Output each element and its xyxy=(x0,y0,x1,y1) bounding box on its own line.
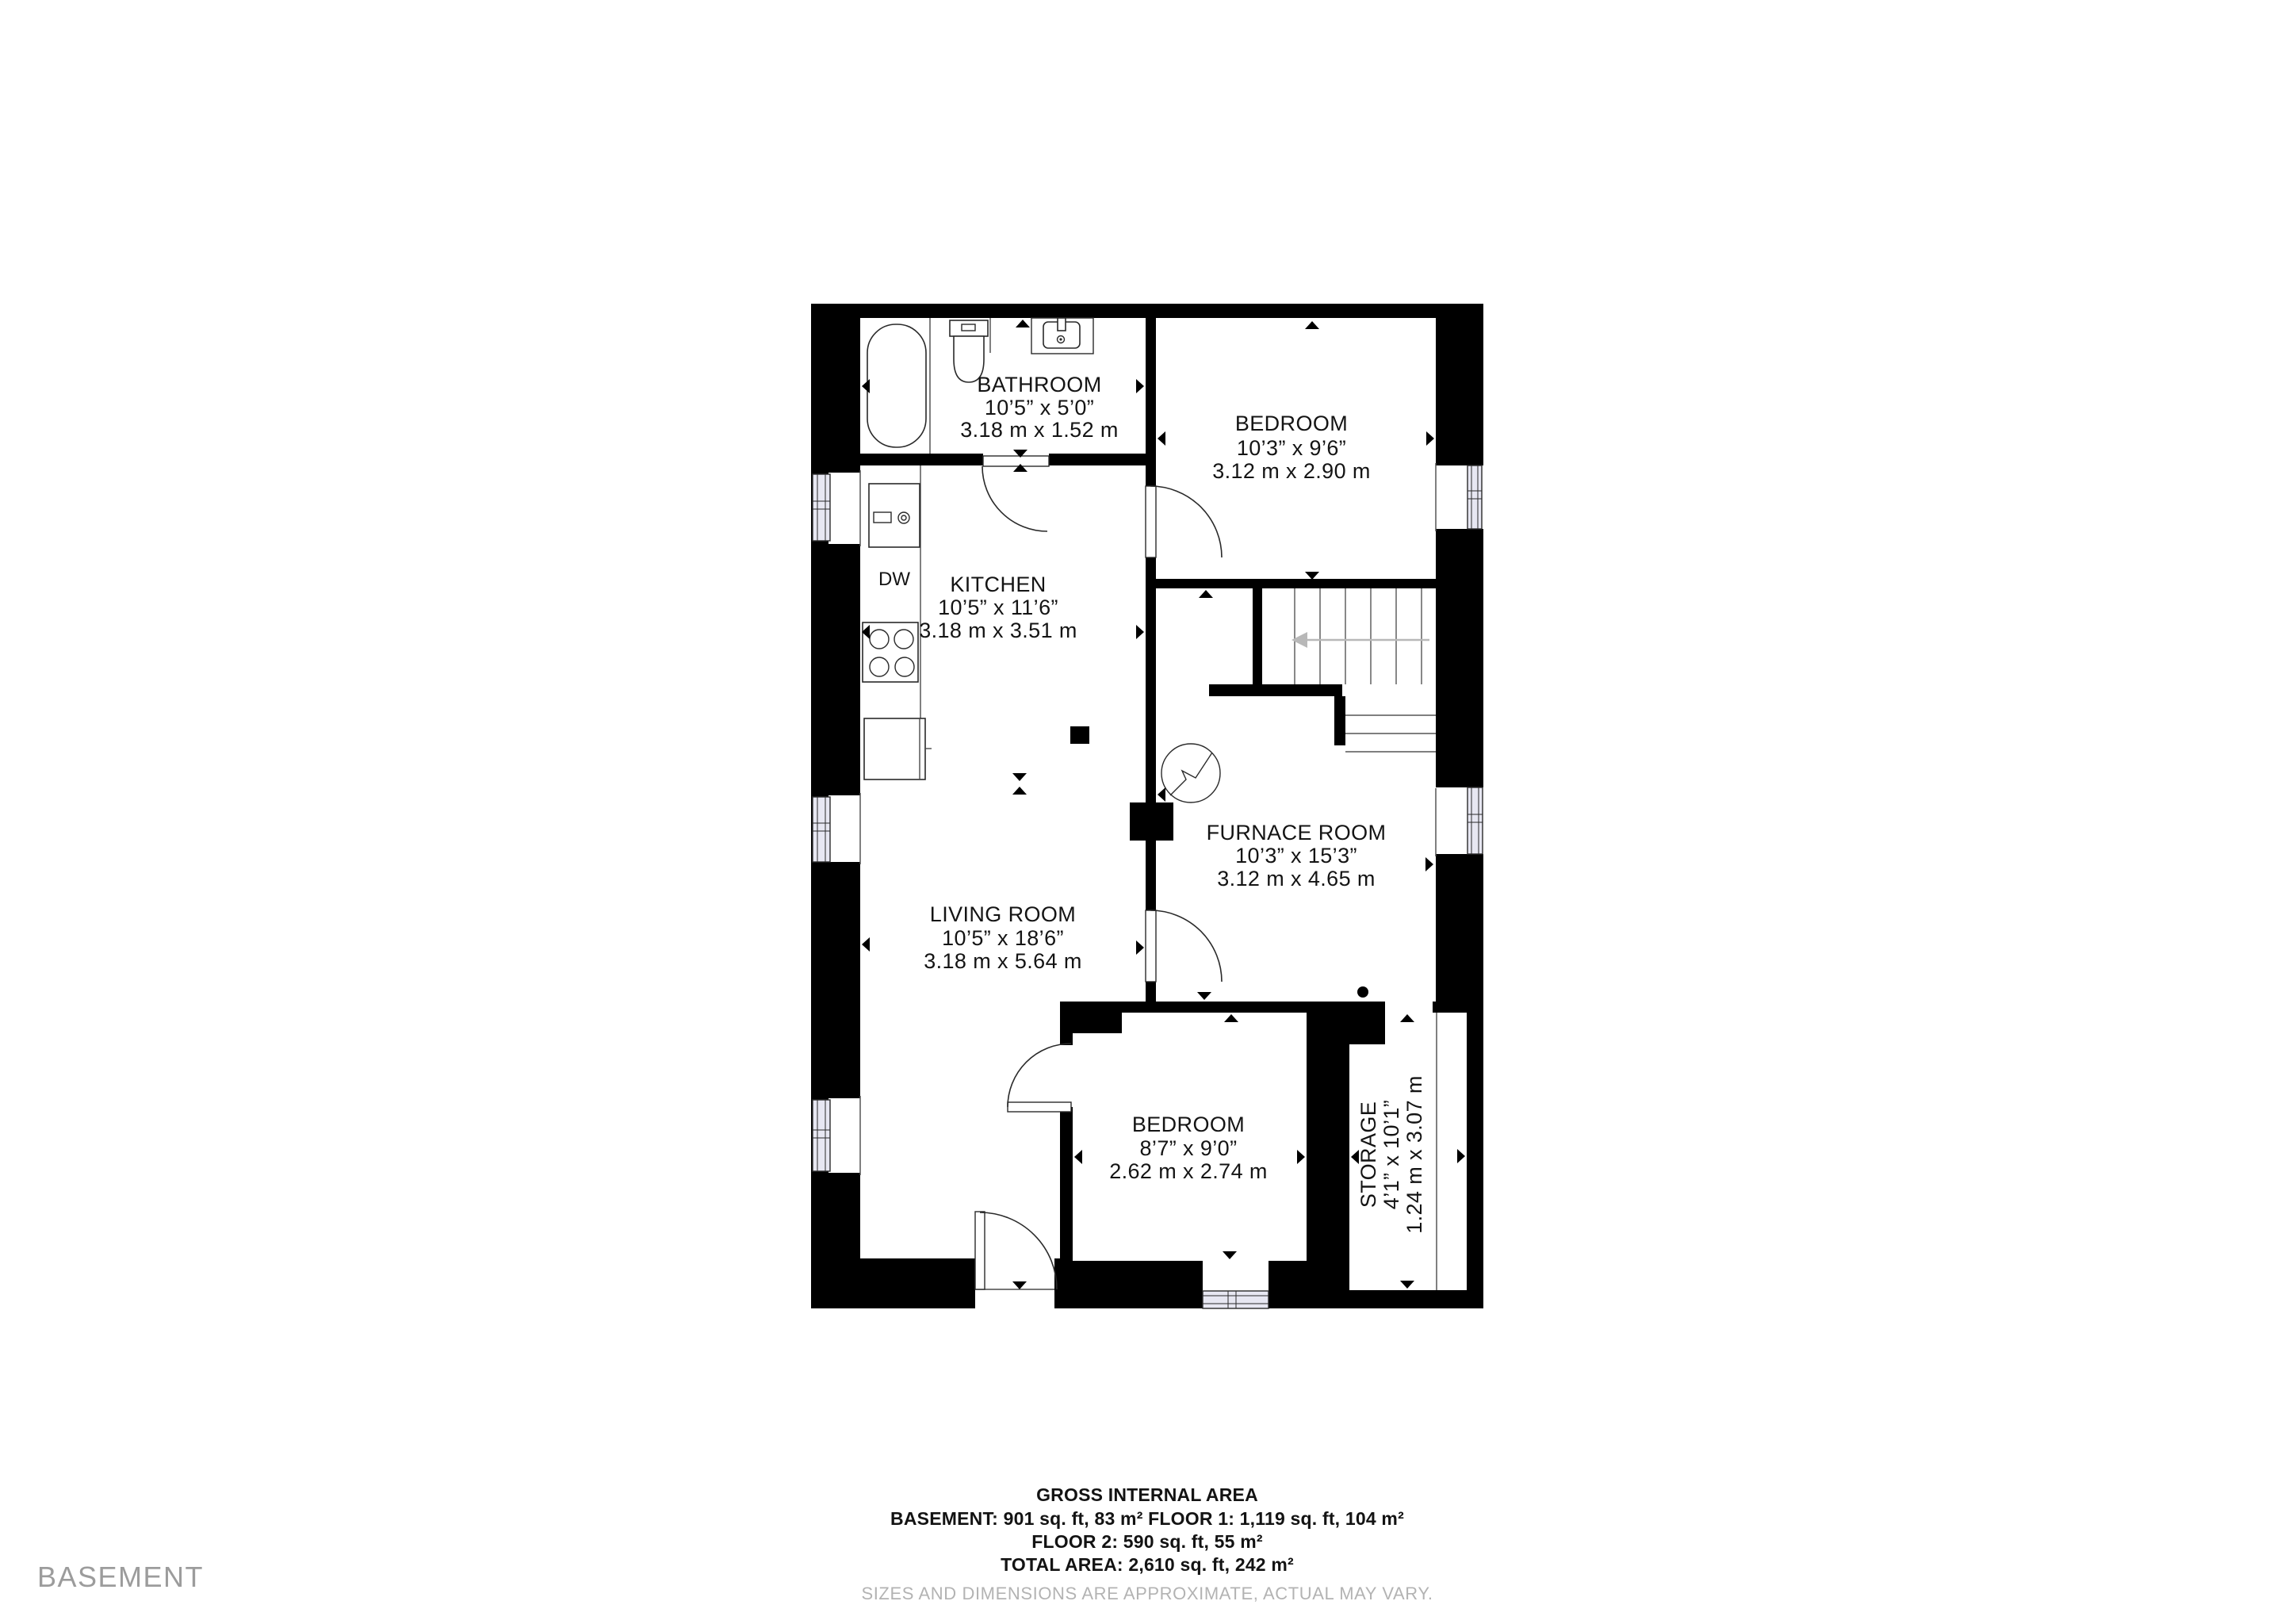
gross-internal-area-title: GROSS INTERNAL AREA xyxy=(1036,1484,1258,1505)
room-dim-imperial: 10’5” x 18’6” xyxy=(942,926,1064,950)
furnace-room-door xyxy=(1146,910,1222,982)
window xyxy=(1468,465,1482,529)
furnace-icon xyxy=(1161,744,1220,802)
fridge xyxy=(864,718,932,779)
stair-wall xyxy=(1253,588,1262,684)
room-dim-imperial: 10’5” x 11’6” xyxy=(938,596,1058,619)
room-label-living-room: LIVING ROOM xyxy=(930,902,1076,926)
stair-wall xyxy=(1209,684,1342,696)
window xyxy=(813,474,830,541)
room-label-bedroom: BEDROOM xyxy=(1235,412,1348,435)
room-dim-imperial: 10’3” x 9’6” xyxy=(1237,436,1346,460)
stair-arrow-head xyxy=(1291,632,1307,648)
room-label-bedroom2: BEDROOM xyxy=(1132,1113,1245,1136)
area-basement-floor1: BASEMENT: 901 sq. ft, 83 m² FLOOR 1: 1,1… xyxy=(890,1508,1404,1529)
area-floor2: FLOOR 2: 590 sq. ft, 55 m² xyxy=(1031,1531,1263,1552)
window xyxy=(813,797,830,862)
post xyxy=(1070,726,1089,744)
room-dim-metric: 3.18 m x 3.51 m xyxy=(919,619,1077,642)
room-dim-imperial: 10’3” x 15’3” xyxy=(1235,844,1357,868)
floorplan-drawing: BATHROOM 10’5” x 5’0” 3.18 m x 1.52 m BE… xyxy=(0,0,2296,1624)
dishwasher-label: DW xyxy=(878,569,910,590)
room-dim-metric: 3.18 m x 5.64 m xyxy=(924,949,1082,973)
post-dot xyxy=(1357,986,1368,998)
room-label-furnace-room: FURNACE ROOM xyxy=(1207,821,1387,845)
room-dim-metric: 3.12 m x 2.90 m xyxy=(1212,459,1371,483)
room-label-kitchen: KITCHEN xyxy=(950,573,1046,596)
exterior-door xyxy=(975,1212,1057,1289)
room-dim-imperial: 8’7” x 9’0” xyxy=(1140,1136,1238,1160)
room-label-bathroom: BATHROOM xyxy=(977,373,1101,396)
disclaimer-text: SIZES AND DIMENSIONS ARE APPROXIMATE, AC… xyxy=(861,1584,1433,1603)
room-dim-imperial: 4’1” x 10’1” xyxy=(1380,1100,1403,1209)
room-dim-imperial: 10’5” x 5’0” xyxy=(985,396,1094,419)
room-dim-metric: 2.62 m x 2.74 m xyxy=(1109,1159,1268,1183)
floorplan-page: BATHROOM 10’5” x 5’0” 3.18 m x 1.52 m BE… xyxy=(0,0,2296,1624)
window xyxy=(813,1100,830,1171)
dishwasher xyxy=(869,484,920,547)
stove xyxy=(863,622,918,682)
window xyxy=(1203,1291,1269,1308)
footer: GROSS INTERNAL AREA BASEMENT: 901 sq. ft… xyxy=(861,1484,1433,1603)
room-dim-metric: 3.18 m x 1.52 m xyxy=(960,418,1119,442)
bathtub xyxy=(867,324,926,447)
floor-title: BASEMENT xyxy=(37,1561,204,1593)
room-dim-metric: 1.24 m x 3.07 m xyxy=(1402,1075,1426,1234)
staircase xyxy=(1291,588,1436,752)
area-total: TOTAL AREA: 2,610 sq. ft, 242 m² xyxy=(1001,1554,1294,1575)
room-label-storage: STORAGE xyxy=(1357,1101,1380,1208)
window xyxy=(1468,787,1483,854)
bedroom2-door xyxy=(1008,1044,1071,1112)
bathroom-door xyxy=(982,456,1049,531)
stair-wall xyxy=(1334,696,1345,745)
bedroom-door xyxy=(1146,486,1222,557)
bathroom-sink xyxy=(1031,318,1093,354)
room-dim-metric: 3.12 m x 4.65 m xyxy=(1217,867,1376,891)
